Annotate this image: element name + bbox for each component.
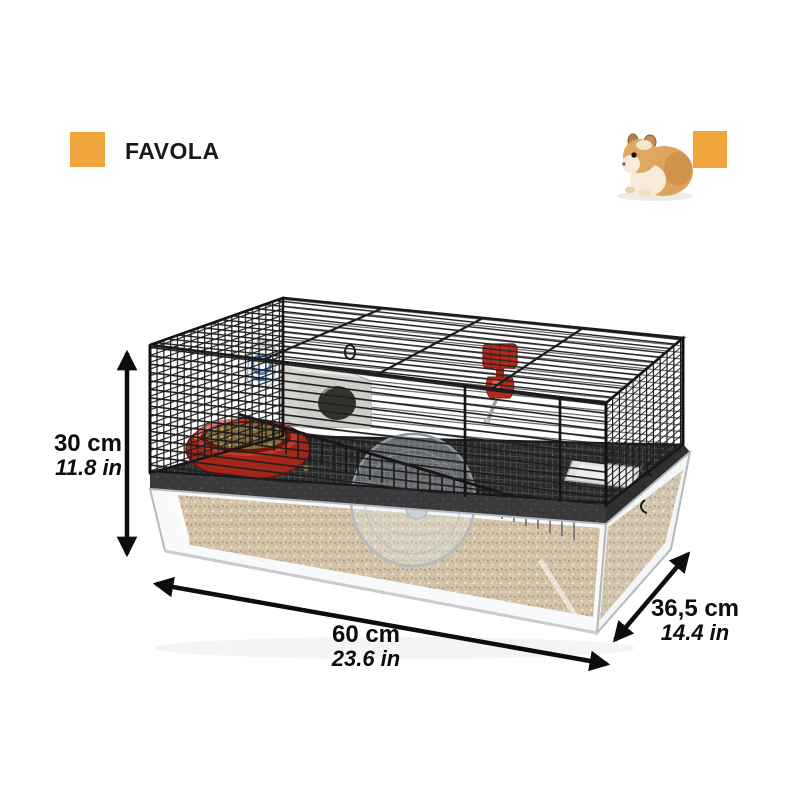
height-metric: 30 cm bbox=[28, 431, 122, 456]
depth-dimension-label: 36,5 cm 14.4 in bbox=[630, 596, 760, 644]
length-dimension-label: 60 cm 23.6 in bbox=[306, 622, 426, 670]
product-dimension-diagram: FAVOLA bbox=[0, 0, 800, 800]
depth-metric: 36,5 cm bbox=[630, 596, 760, 621]
height-imperial: 11.8 in bbox=[28, 456, 122, 479]
depth-imperial: 14.4 in bbox=[630, 621, 760, 644]
length-metric: 60 cm bbox=[306, 622, 426, 647]
cage-illustration bbox=[0, 0, 800, 800]
height-dimension-label: 30 cm 11.8 in bbox=[28, 431, 122, 479]
hamster-image bbox=[617, 134, 693, 201]
length-imperial: 23.6 in bbox=[306, 647, 426, 670]
